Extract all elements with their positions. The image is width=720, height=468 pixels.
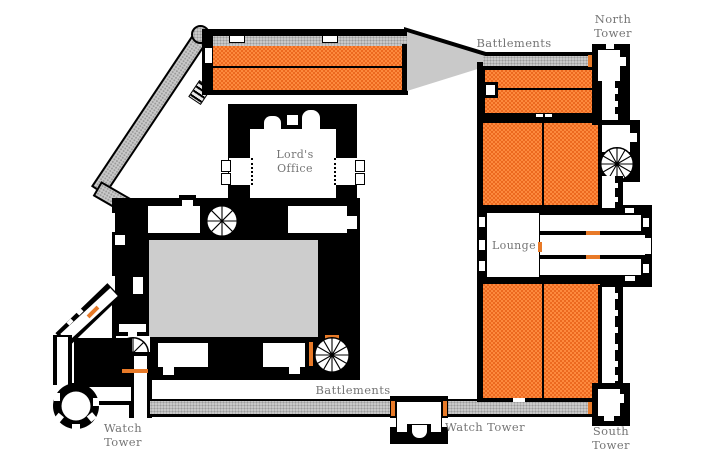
furniture	[302, 110, 320, 130]
arrow-slit	[612, 88, 618, 94]
arrow-slit	[612, 197, 618, 202]
window-slot	[205, 48, 212, 63]
arrow-slit	[612, 310, 618, 316]
arrow-slit	[612, 327, 618, 333]
south-tower-label: South Tower	[592, 424, 630, 452]
south-tower-line2: Tower	[592, 438, 630, 452]
window-slot	[479, 217, 485, 227]
arrow-slit	[612, 375, 618, 381]
window-tab	[221, 173, 231, 185]
window-slot	[645, 238, 651, 246]
door-marker	[586, 255, 600, 259]
battlements-north-label: Battlements	[476, 36, 551, 50]
window-slot	[643, 218, 649, 227]
furniture	[287, 115, 298, 125]
window-slot	[643, 264, 649, 273]
south-tower-line1: South	[593, 424, 629, 438]
furniture	[163, 367, 174, 375]
north-tower-line1: North	[595, 12, 632, 26]
window-tab	[355, 160, 365, 172]
south-battlement-walkway-west	[150, 399, 392, 417]
door-marker	[443, 401, 447, 416]
north-tower-line2: Tower	[594, 26, 632, 40]
castle-floor-plan: Lord's Office	[0, 0, 720, 468]
keep-room-southeast	[263, 343, 305, 367]
door-gap	[513, 398, 525, 402]
corridor-band-north	[540, 215, 641, 231]
arrow-slit	[612, 183, 618, 188]
spiral-staircase-icon	[205, 204, 239, 238]
nw-hall-west-wall	[202, 36, 213, 94]
door-marker	[588, 402, 592, 414]
lounge-label: Lounge	[492, 239, 536, 253]
furniture	[264, 116, 281, 130]
east-corridor-south	[602, 287, 615, 389]
watch-tower-sw-line2: Tower	[104, 435, 142, 449]
window-tab	[355, 173, 365, 185]
window-slot	[229, 158, 253, 185]
nw-hall-room-lower	[213, 68, 404, 92]
watch-tower-sw-label: Watch Tower	[104, 421, 142, 449]
watch-tower-sw-line1: Watch	[104, 421, 142, 435]
ne-hall-room-lower	[485, 90, 600, 113]
door-marker	[391, 401, 395, 416]
east-battlement-strip	[483, 56, 589, 66]
window-slot	[346, 216, 357, 229]
spiral-staircase-icon	[313, 336, 351, 374]
watch-tower-south-label: Watch Tower	[445, 420, 525, 434]
furniture	[289, 367, 300, 374]
lords-office-label-line2: Office	[277, 162, 313, 175]
keep-room-northwest	[148, 206, 200, 233]
east-room-upper-left	[483, 123, 542, 205]
door-gap	[625, 208, 634, 213]
window-slot	[390, 418, 396, 427]
east-room-lower-right	[544, 284, 600, 398]
lords-office-label-line1: Lord's	[276, 148, 313, 161]
keep-room-northeast	[288, 206, 347, 233]
ne-hall-room-upper	[485, 70, 600, 88]
east-corridor-mid	[602, 176, 615, 208]
window-slot	[606, 43, 614, 49]
window-slot	[479, 240, 485, 250]
east-room-lower-left	[483, 284, 542, 398]
window-slot	[645, 246, 651, 254]
window-slot	[630, 133, 637, 142]
north-tower-room	[598, 50, 620, 81]
northwest-diagonal-battlement	[91, 29, 210, 196]
arrow-slit	[612, 361, 618, 367]
north-tower-label: North Tower	[594, 12, 632, 40]
corridor-band-south	[540, 259, 641, 275]
south-tower-room	[598, 389, 620, 416]
window-slot	[618, 394, 624, 403]
corridor-band-middle	[540, 235, 645, 255]
crenel-notch	[229, 35, 245, 43]
lords-office-label: Lord's Office	[276, 148, 313, 176]
hearth	[412, 425, 427, 438]
battlements-south-label: Battlements	[315, 383, 390, 397]
arrow-slit	[612, 101, 618, 107]
nw-hall-room-upper	[213, 46, 404, 66]
window-slot	[486, 85, 495, 95]
door-marker	[586, 231, 600, 235]
furniture	[182, 200, 193, 210]
crenel-notch	[322, 35, 338, 43]
nw-hall-south-wall	[202, 90, 408, 95]
window-slot	[479, 261, 485, 271]
courtyard	[149, 240, 318, 337]
arrow-slit	[612, 344, 618, 350]
window-slot	[108, 213, 115, 232]
window-slot	[604, 416, 614, 421]
east-room-upper-right	[544, 123, 600, 205]
window-tab	[221, 160, 231, 172]
keep-room-southwest	[158, 343, 208, 367]
window-slot	[620, 57, 626, 66]
door-marker	[538, 242, 542, 252]
alcove	[115, 235, 125, 245]
arrow-slit	[612, 293, 618, 299]
door-gap	[625, 276, 635, 281]
